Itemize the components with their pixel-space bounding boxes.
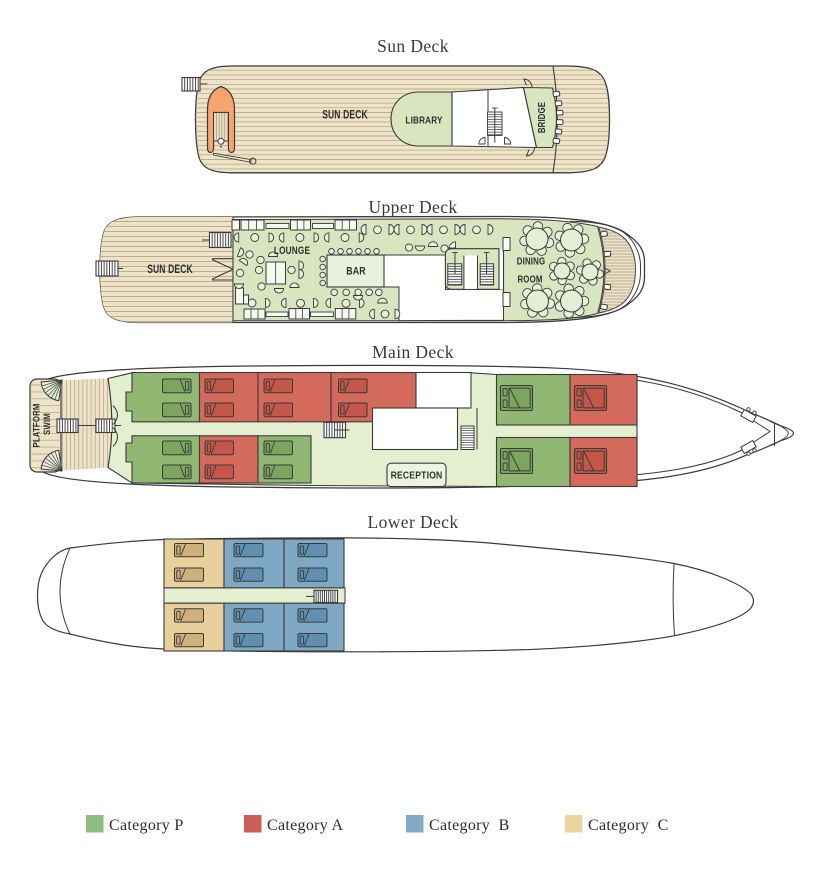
- svg-text:PLATFORM: PLATFORM: [31, 403, 42, 447]
- svg-text:Category A: Category A: [267, 817, 343, 834]
- svg-text:BRIDGE: BRIDGE: [536, 102, 547, 133]
- svg-text:Lower Deck: Lower Deck: [368, 512, 459, 532]
- svg-text:SUN DECK: SUN DECK: [322, 109, 368, 122]
- svg-text:Category C: Category C: [588, 817, 669, 834]
- svg-text:SUN DECK: SUN DECK: [147, 264, 193, 277]
- svg-text:DINING: DINING: [517, 255, 545, 266]
- svg-text:BAR: BAR: [346, 266, 366, 278]
- svg-text:Sun Deck: Sun Deck: [377, 36, 449, 56]
- svg-text:RECEPTION: RECEPTION: [391, 470, 443, 481]
- svg-text:Main Deck: Main Deck: [372, 342, 454, 362]
- svg-text:LIBRARY: LIBRARY: [405, 113, 443, 125]
- svg-text:Category P: Category P: [109, 817, 184, 834]
- svg-text:SWIM: SWIM: [41, 413, 52, 435]
- svg-text:Upper Deck: Upper Deck: [368, 197, 457, 217]
- svg-text:ROOM: ROOM: [517, 273, 542, 284]
- svg-text:LOUNGE: LOUNGE: [274, 245, 310, 257]
- svg-text:Category B: Category B: [429, 817, 510, 834]
